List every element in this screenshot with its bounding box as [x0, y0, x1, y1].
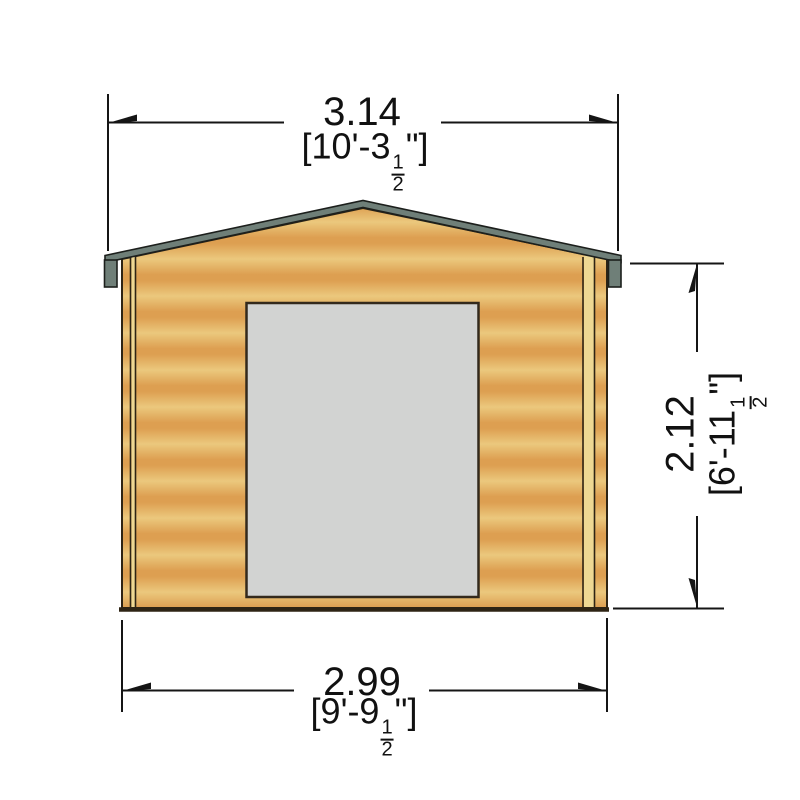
fraction-denominator: 2 [391, 173, 404, 194]
wall-height-imp-prefix: [6'-11 [702, 410, 743, 496]
wall-height-fraction: 12 [730, 396, 770, 409]
corner-trim-strip-right [584, 256, 594, 607]
fraction-numerator: 1 [730, 396, 749, 409]
wall-width-imperial-label: [9'-912"] [311, 693, 418, 760]
wall-height-imp-suffix: "] [702, 372, 743, 395]
fraction-denominator: 2 [749, 396, 770, 409]
cabin [105, 201, 622, 610]
arrowhead-right-top [689, 264, 698, 293]
roof-fascia-end-right [609, 260, 622, 287]
roof-width-fraction: 12 [391, 154, 404, 194]
fraction-denominator: 2 [380, 738, 393, 759]
door-panel [247, 303, 479, 597]
roof-width-imp-suffix: "] [406, 126, 429, 167]
wall-width-imp-prefix: [9'-9 [311, 691, 380, 732]
wall-width-fraction: 12 [380, 719, 393, 759]
corner-trim-strip-left [132, 255, 136, 607]
arrowhead-right-bottom [689, 578, 698, 607]
wall-height-metric-label: 2.12 [660, 372, 702, 496]
roof-fascia-end-left [105, 260, 118, 287]
roof-width-imp-prefix: [10'-3 [302, 126, 391, 167]
wall-height-imperial-label: [6'-1112"] [702, 372, 771, 496]
roof-width-imperial-label: [10'-312"] [302, 128, 429, 195]
fraction-numerator: 1 [391, 154, 404, 173]
wall-height-label-group: 2.12 [6'-1112"] [660, 372, 771, 496]
elevation-diagram: 3.14 [10'-312"] 2.99 [9'-912"] 2.12 [6'-… [0, 0, 800, 800]
wall-width-imp-suffix: "] [395, 691, 418, 732]
fraction-numerator: 1 [380, 719, 393, 738]
